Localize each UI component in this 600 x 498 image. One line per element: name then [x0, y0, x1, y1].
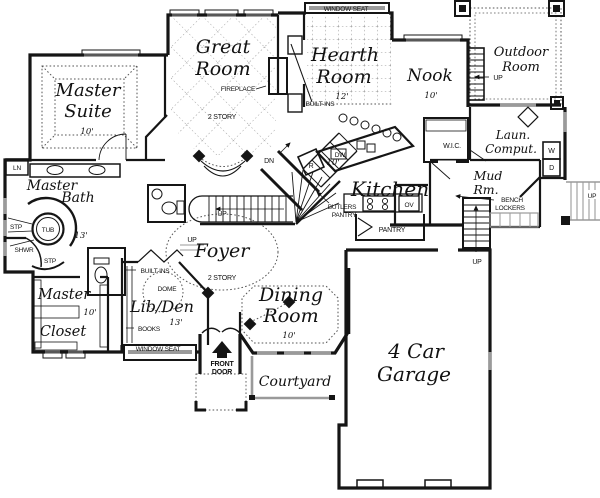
stool	[350, 117, 358, 125]
bench-label: BENCH	[501, 197, 523, 204]
outdoor-up-label: UP	[493, 75, 503, 82]
master-closet-label: Master	[37, 287, 91, 303]
foyer-label: Foyer	[194, 240, 252, 262]
stool	[339, 114, 347, 122]
fireplace-label: FIREPLACE	[221, 86, 256, 93]
oven-label: OV	[405, 202, 415, 209]
vanity	[30, 164, 120, 177]
master-suite-dim: 10'	[80, 127, 93, 137]
outdoor-room-label2: Room	[501, 60, 540, 75]
tub-label: TUB	[42, 227, 54, 234]
laundry-label: Laun.	[495, 128, 530, 142]
dining-room-label: Dining	[258, 284, 323, 306]
door-leaf	[432, 163, 450, 179]
nook-dim: 10'	[424, 91, 437, 101]
side-exterior-stairs	[561, 182, 600, 225]
sink	[89, 166, 105, 175]
master-closet-label2: Closet	[40, 324, 86, 340]
stool	[393, 133, 401, 141]
master-suite-label2: Suite	[64, 101, 112, 122]
shower-label: SHWR	[14, 247, 34, 254]
dining-room-label2: Room	[262, 305, 318, 327]
libden-label: Lib/Den	[129, 297, 194, 316]
refrigerator	[298, 149, 324, 175]
hearth-room-dim: 12'	[335, 92, 348, 102]
laundry-sink	[518, 107, 538, 127]
butlers-label2: PANTRY	[332, 212, 357, 219]
outdoor-room-label: Outdoor	[494, 45, 549, 60]
stool	[361, 121, 369, 129]
stool	[372, 125, 380, 133]
kitchen-dim: 10'	[326, 158, 339, 168]
curved-steps	[201, 161, 245, 176]
range-label: R	[309, 163, 314, 170]
front-door-arrow	[212, 341, 232, 353]
toilet	[162, 202, 176, 214]
libden-dim: 13'	[169, 318, 182, 328]
courtyard-label: Courtyard	[259, 374, 331, 390]
washer-label: W	[548, 148, 555, 155]
libden-builtins-label: BUILT-INS	[141, 268, 171, 275]
lockers-label: LOCKERS	[495, 205, 526, 212]
back-staircase	[463, 198, 490, 252]
great-room-label2: Room	[194, 58, 250, 80]
sidestair-up-label: UP	[588, 193, 597, 200]
master-closet-dim: 10'	[83, 308, 96, 318]
foyer-story-label: 2 STORY	[208, 275, 237, 282]
toilet	[95, 267, 107, 283]
mud-room-label2: Rm.	[472, 182, 498, 197]
hearth-room-label2: Room	[315, 66, 371, 88]
porch-corners	[196, 401, 246, 410]
pantry-label: PANTRY	[379, 227, 406, 234]
butlers-label: BUTLERS	[328, 204, 357, 211]
island-sink	[357, 141, 365, 149]
porch-outline	[196, 374, 246, 410]
wic-closet	[424, 118, 468, 162]
outdoor-staircase	[468, 48, 489, 100]
floor-plan: Master Suite 10' Great Room FIREPLACE 2 …	[0, 0, 600, 498]
builtin-cabinet	[288, 36, 302, 54]
master-suite-label: Master	[55, 80, 122, 101]
laundry-label2: Comput.	[485, 142, 537, 156]
dishwasher-label: DW	[335, 152, 346, 159]
sink	[47, 166, 63, 175]
step2-label: STP	[44, 258, 56, 265]
stair-dn-label: DN	[264, 158, 274, 165]
windows	[5, 3, 565, 488]
toilet-tank	[177, 201, 184, 214]
libden-window-seat-label: WINDOW SEAT	[136, 346, 181, 353]
kitchen-label: Kitchen	[350, 177, 429, 201]
garage-label2: Garage	[377, 362, 451, 386]
master-bath-label2: Bath	[60, 190, 94, 206]
linen-label: LN	[13, 165, 21, 172]
porch-up-label: UP	[187, 237, 197, 244]
nook-label: Nook	[406, 66, 453, 86]
books-label: BOOKS	[138, 326, 161, 333]
step-label: STP	[10, 224, 22, 231]
hearth-window-seat-label: WINDOW SEAT	[324, 6, 369, 13]
master-bath-dim: 13'	[74, 231, 87, 241]
hearth-room-label: Hearth	[310, 44, 379, 66]
great-room-story-label: 2 STORY	[208, 114, 237, 121]
labels: Master Suite 10' Great Room FIREPLACE 2 …	[10, 6, 600, 390]
hanging-rod	[426, 120, 466, 131]
builtin-cabinet	[288, 94, 302, 112]
garage-label: 4 Car	[387, 339, 445, 363]
pantry-door	[358, 218, 372, 236]
stair-up-label: UP	[217, 211, 227, 218]
mud-room-label: Mud	[473, 168, 503, 183]
powder-room	[148, 185, 185, 222]
wic-label: W.I.C.	[443, 143, 461, 150]
dryer-label: D	[549, 165, 554, 172]
great-room-label: Great	[196, 36, 251, 58]
front-door-label: FRONT	[210, 361, 234, 368]
front-door-label2: DOOR	[212, 369, 232, 376]
hearth-builtins-label: BUILT-INS	[306, 101, 336, 108]
dining-room-dim: 10'	[282, 331, 295, 341]
dome-label: DOME	[158, 286, 178, 293]
toilet-tank	[94, 258, 109, 264]
backstair-up-label: UP	[472, 259, 482, 266]
floor-plan-drawing: Master Suite 10' Great Room FIREPLACE 2 …	[0, 0, 600, 498]
sink	[152, 189, 162, 199]
lockers	[490, 213, 538, 227]
door-swing	[99, 134, 126, 160]
island-sink	[367, 144, 375, 152]
